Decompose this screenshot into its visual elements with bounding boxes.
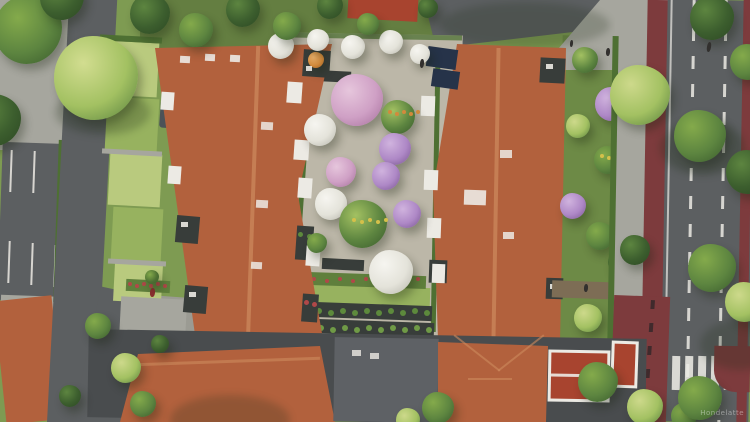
terrace-furniture: [181, 222, 188, 227]
awning: [424, 170, 439, 190]
skylight: [261, 122, 273, 131]
awning: [167, 166, 181, 185]
roof-terrace: [539, 57, 565, 83]
rooftop-unit: [370, 353, 379, 359]
lawn-tile: [111, 207, 164, 264]
dot: [366, 325, 372, 331]
lawn-tile: [108, 153, 163, 208]
dot: [402, 327, 408, 333]
solar-panel: [426, 46, 458, 70]
dot: [376, 220, 380, 224]
skylight: [180, 56, 190, 64]
dot: [360, 220, 364, 224]
dot: [400, 310, 406, 316]
dot: [414, 325, 420, 331]
dot: [402, 110, 406, 114]
dot: [416, 277, 420, 281]
dot: [351, 279, 355, 283]
dot: [128, 282, 132, 286]
terrace-furniture: [306, 66, 312, 71]
dot: [364, 277, 368, 281]
dot: [298, 232, 303, 237]
tree: [422, 392, 454, 422]
dot: [368, 218, 372, 222]
dot: [304, 300, 309, 305]
dot: [388, 110, 392, 114]
awning: [297, 178, 312, 199]
hip-line: [468, 378, 512, 380]
awning: [432, 264, 446, 283]
dot: [412, 308, 418, 314]
skylight: [230, 55, 240, 63]
flower-dots: [352, 218, 392, 224]
dot: [328, 310, 334, 316]
dot: [156, 282, 160, 286]
dot: [409, 112, 413, 116]
dot: [352, 218, 356, 222]
terrace-plants: [304, 300, 320, 307]
skylight: [500, 150, 512, 158]
flower-dots: [388, 110, 423, 116]
tree: [627, 389, 663, 422]
roof-terrace: [175, 215, 200, 244]
vegetable-dots: [318, 325, 438, 333]
terrace-furniture: [546, 64, 553, 69]
crosswalk-stripe: [672, 356, 681, 390]
bench-planter: [322, 258, 365, 271]
dot: [376, 310, 382, 316]
dot: [312, 302, 317, 307]
dot: [342, 325, 348, 331]
dot: [390, 325, 396, 331]
roof-terrace: [301, 293, 319, 322]
vegetable-dots: [316, 308, 436, 316]
dot: [426, 327, 432, 333]
awning: [293, 140, 309, 161]
dot: [424, 310, 430, 316]
awning: [286, 82, 302, 104]
tree-shadow: [440, 2, 610, 48]
dot: [325, 279, 329, 283]
skylight: [503, 232, 514, 239]
dot: [388, 308, 394, 314]
dot: [364, 308, 370, 314]
skylight: [256, 200, 268, 209]
dot: [340, 308, 346, 314]
dot: [338, 277, 342, 281]
dot: [354, 327, 360, 333]
awning: [427, 218, 442, 238]
watermark-credit: Hondelatte: [700, 409, 744, 417]
roof-terrace: [183, 285, 208, 314]
terrace-furniture: [189, 292, 196, 297]
dot: [600, 154, 604, 158]
rooftop-unit: [352, 350, 361, 356]
dot: [352, 310, 358, 316]
aerial-site-render: Hondelatte: [0, 0, 750, 422]
skylight: [464, 190, 487, 206]
skylight: [251, 262, 262, 270]
dot: [395, 112, 399, 116]
dot: [142, 282, 146, 286]
dot: [416, 110, 420, 114]
dot: [378, 327, 384, 333]
dot: [384, 218, 388, 222]
dot: [163, 284, 167, 288]
skylight: [205, 54, 215, 62]
dot: [135, 284, 139, 288]
awning: [160, 92, 174, 111]
solar-panel: [431, 68, 460, 90]
dot: [330, 327, 336, 333]
